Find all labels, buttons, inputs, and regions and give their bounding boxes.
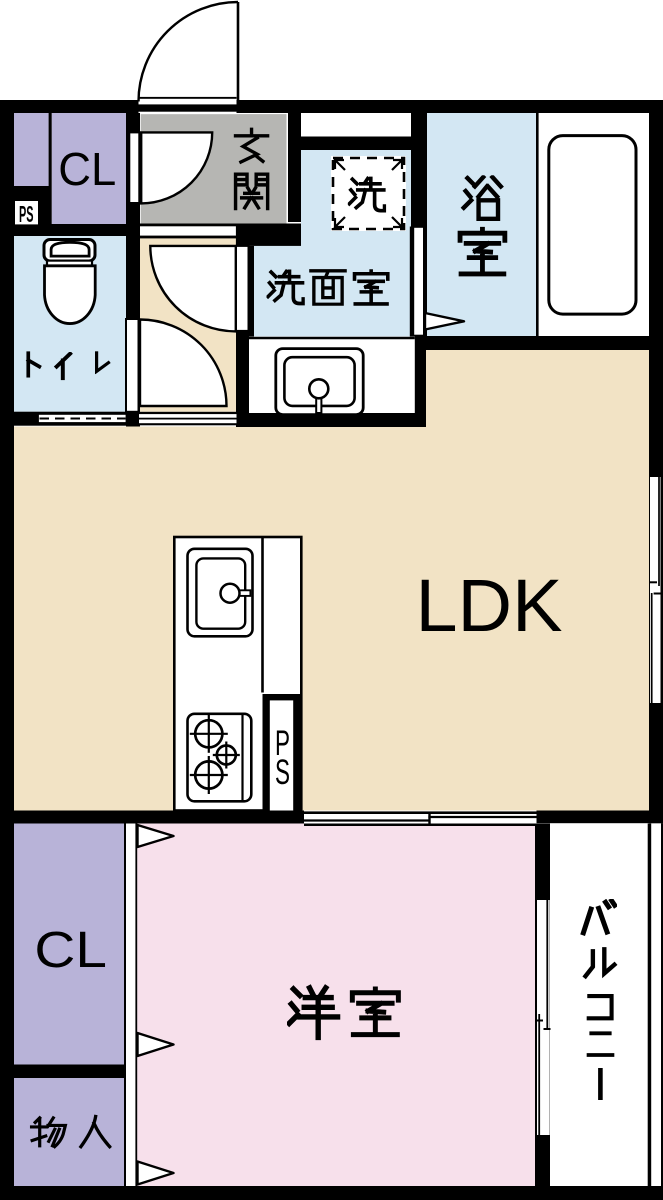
svg-text:CL: CL xyxy=(34,921,107,978)
svg-text:S: S xyxy=(275,753,290,792)
svg-text:LDK: LDK xyxy=(416,564,563,647)
svg-text:PS: PS xyxy=(19,201,34,227)
svg-text:CL: CL xyxy=(58,143,116,195)
